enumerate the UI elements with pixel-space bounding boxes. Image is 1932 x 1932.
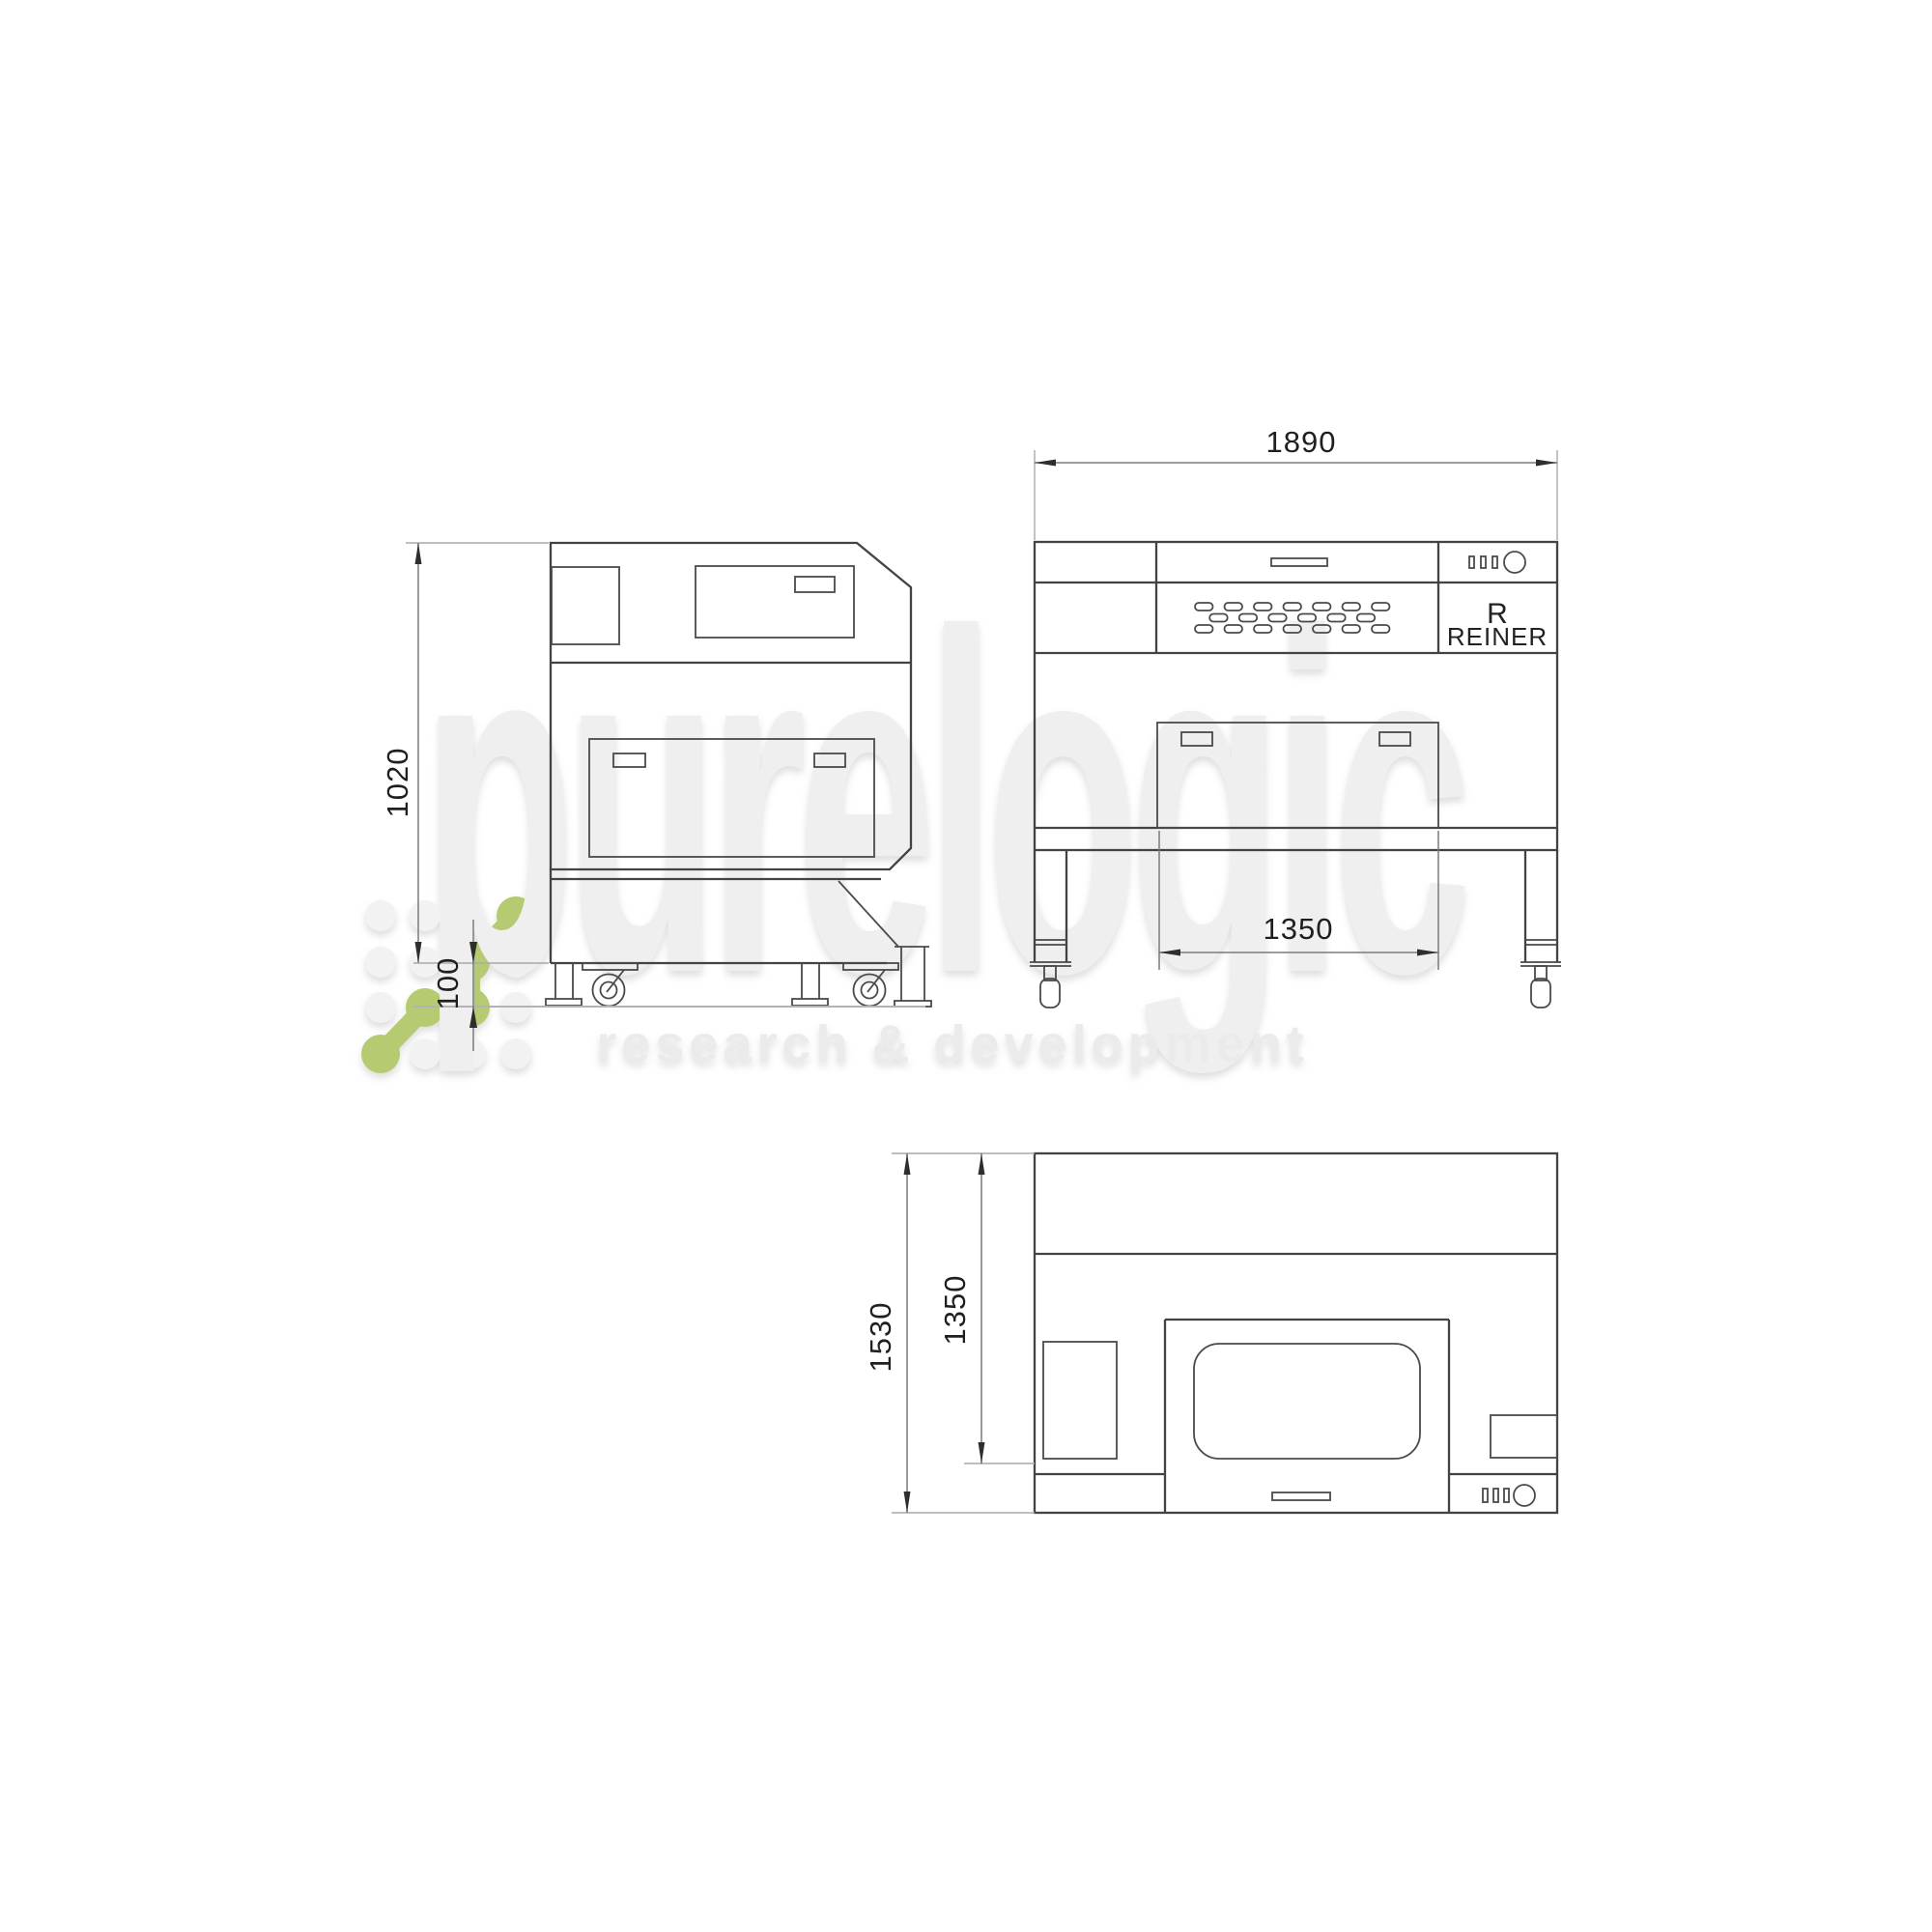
dimension-front-stand-width: 1350 [1264,912,1334,946]
dimension-top-depth: 1530 [864,1302,897,1373]
dimension-front-width: 1890 [1266,425,1337,459]
logo-dot [365,900,396,931]
top-view [1035,1153,1557,1513]
front-power-button [1504,552,1525,573]
dimension-top-body-depth: 1350 [938,1275,972,1346]
drawing-canvas: purelogic research & development [0,0,1932,1932]
top-right-panel [1491,1415,1557,1458]
dimension-side-height: 1020 [381,748,414,818]
watermark: purelogic research & development [361,534,1465,1076]
top-left-panel [1043,1342,1117,1459]
top-lid-window [1194,1344,1420,1459]
top-power-button [1514,1485,1535,1506]
front-leg-right [1520,850,1561,1008]
logo-dot [365,992,396,1023]
top-lid-handle [1272,1492,1330,1500]
watermark-brand-text: purelogic [422,534,1465,1076]
dimension-ground-clearance: 100 [431,957,465,1010]
logo-dot [365,947,396,978]
top-indicator-lights [1483,1489,1509,1502]
logo-green-node [361,1035,400,1073]
technical-drawing: purelogic research & development [0,0,1932,1932]
front-indicator-lights [1469,556,1497,568]
watermark-tagline-text: research & development [596,1015,1308,1073]
brand-name-text: REINER [1447,622,1548,651]
